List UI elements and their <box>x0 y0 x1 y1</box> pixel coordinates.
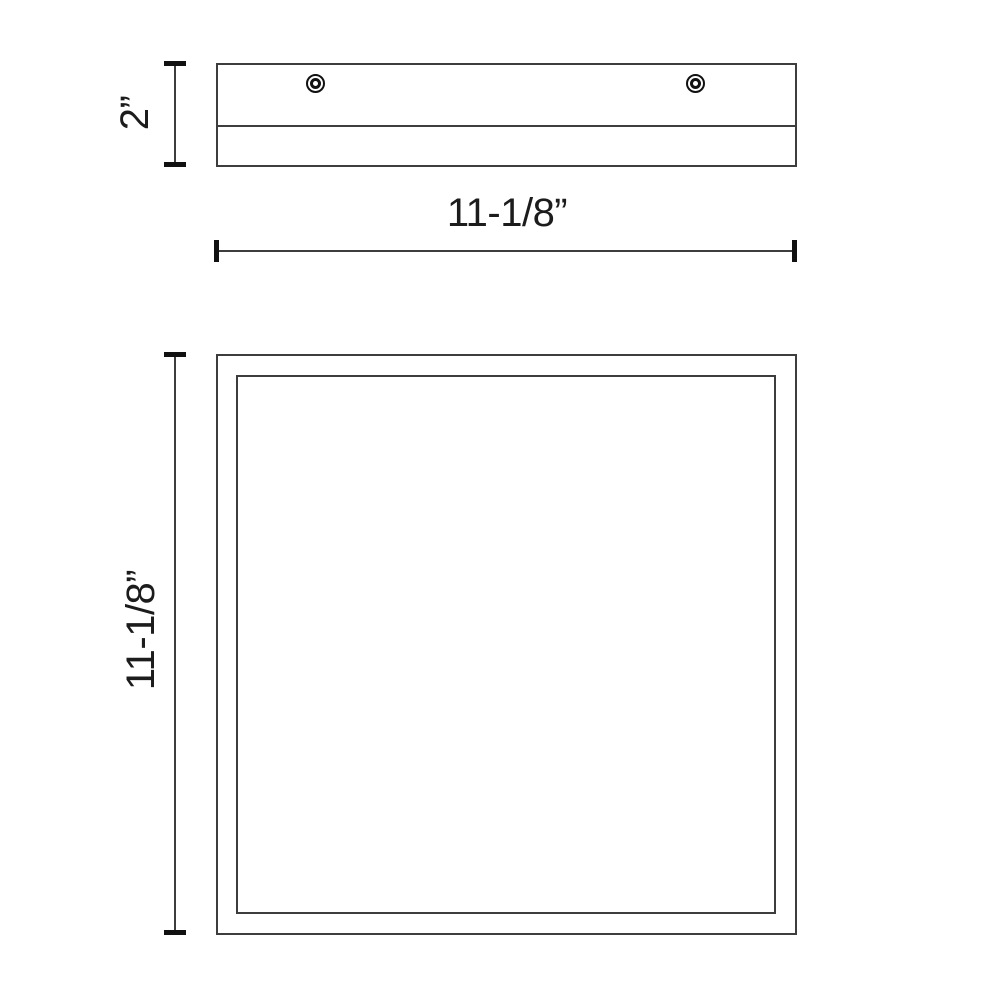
side-height-dim-tick-bottom <box>164 162 186 167</box>
front-height-dim-label: 11-1/8” <box>121 570 161 690</box>
side-width-dim-line <box>216 250 797 252</box>
screw-hole-inner-ring <box>310 78 321 89</box>
dimension-drawing: 2” 11-1/8” 11-1/8” <box>0 0 1000 1000</box>
side-height-dim-tick-top <box>164 61 186 66</box>
side-height-dim-line <box>174 64 176 166</box>
front-height-dim-tick-top <box>164 352 186 357</box>
screw-hole-icon-right <box>686 74 705 93</box>
front-height-dim-tick-bottom <box>164 930 186 935</box>
side-width-dim-tick-left <box>214 240 219 262</box>
side-view-outline <box>216 63 797 167</box>
side-view-divider-line <box>217 125 796 127</box>
screw-hole-icon-left <box>306 74 325 93</box>
front-view-inner-frame <box>236 375 776 914</box>
side-width-dim-tick-right <box>792 240 797 262</box>
front-height-dim-line <box>174 355 176 934</box>
screw-hole-inner-ring <box>690 78 701 89</box>
side-width-dim-label: 11-1/8” <box>447 193 567 233</box>
side-height-dim-label: 2” <box>115 96 155 131</box>
